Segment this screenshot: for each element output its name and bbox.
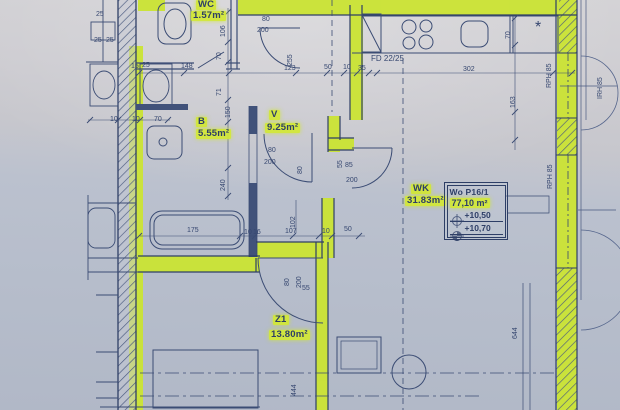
dimension-15: 15 (131, 63, 139, 71)
dimension-200: 200 (264, 159, 276, 167)
room-label-wk: WK (411, 184, 431, 194)
room-area-z1: 13.80m² (269, 330, 310, 340)
dimension-71: 71 (216, 88, 224, 96)
dimension-50: 50 (324, 64, 332, 72)
dimension-444: 444 (291, 384, 299, 396)
dimension-55: 55 (337, 160, 345, 168)
apartment-info-box: Wo P16/1 77,10 m² +10,50 +10,70 (444, 182, 508, 240)
dimension-102: 102 (290, 216, 298, 228)
dimension-70: 70 (216, 52, 224, 60)
dimension-163: 163 (510, 96, 518, 108)
dimension-50: 50 (344, 226, 352, 234)
dimension-10: 10 (244, 229, 252, 237)
dimension-70: 70 (154, 116, 162, 124)
dimension-25: 25 (94, 37, 102, 45)
dimension-80: 80 (268, 147, 276, 155)
dimension-80: 80 (284, 278, 292, 286)
dimension-55: 55 (302, 285, 310, 293)
dimension-70: 70 (505, 31, 513, 39)
dimension-: * (535, 19, 541, 36)
dimension-644: 644 (512, 327, 520, 339)
room-label-z1: Z1 (273, 315, 289, 325)
dimension-175: 175 (187, 227, 199, 235)
room-area-wk: 31.83m² (405, 196, 446, 206)
dimension-rph85: RPH 85 (547, 164, 555, 189)
level-value-lower: +10,70 (465, 223, 491, 233)
dimension-25: 25 (96, 11, 104, 19)
dimension-240: 240 (220, 179, 228, 191)
dimension-200: 200 (346, 177, 358, 185)
apartment-number: Wo P16/1 (450, 187, 503, 197)
apartment-area: 77,10 m² (450, 198, 490, 208)
dimension-302: 302 (463, 66, 475, 74)
room-area-b: 5.55m² (196, 129, 231, 139)
dimension-10: 10 (132, 116, 140, 124)
dimension-80: 80 (262, 16, 270, 24)
floorplan-photo: WC1.57m²B5.55m²V9.25m²WK31.83m²Z113.80m²… (0, 0, 620, 410)
room-label-b: B (196, 117, 207, 127)
dimension-123: 123 (284, 65, 296, 73)
dimension-16: 16 (253, 229, 261, 237)
dimension-85: 85 (345, 162, 353, 170)
room-area-v: 9.25m² (265, 123, 300, 133)
dimension-35: 35 (358, 65, 366, 73)
dimension-148: 148 (181, 63, 193, 71)
dimension-10: 10 (322, 228, 330, 236)
room-area-wc: 1.57m² (191, 11, 226, 21)
annotation-layer: WC1.57m²B5.55m²V9.25m²WK31.83m²Z113.80m²… (0, 0, 620, 410)
dimension-10: 10 (110, 116, 118, 124)
level-value-upper: +10,50 (465, 210, 491, 220)
dimension-25: 25 (106, 37, 114, 45)
apartment-info-inner: Wo P16/1 77,10 m² +10,50 +10,70 (447, 185, 506, 238)
room-label-wc: WC (196, 0, 216, 10)
dimension-rph85: RPH 85 (546, 63, 554, 88)
dimension-irh85: IRH 85 (597, 77, 605, 99)
dimension-10: 10 (343, 64, 351, 72)
dimension-200: 200 (257, 27, 269, 35)
dimension-80: 80 (297, 166, 305, 174)
room-label-v: V (269, 110, 280, 120)
dimension-107: 107 (285, 228, 297, 236)
dimension-25: 25 (142, 62, 150, 70)
dimension-fd2225: FD 22/25 (371, 55, 404, 64)
dimension-150: 150 (225, 106, 233, 118)
dimension-106: 106 (220, 25, 228, 37)
